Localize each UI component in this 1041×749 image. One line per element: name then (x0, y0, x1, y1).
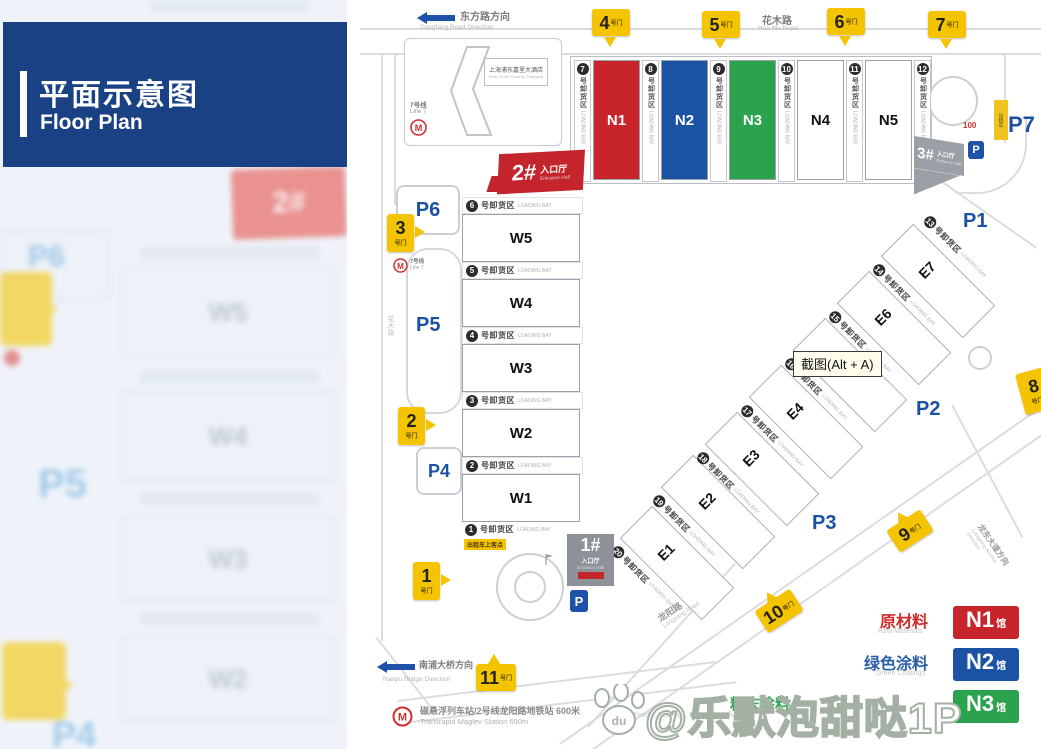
gate-5-arrow-icon (714, 39, 726, 49)
parking-p7-label: P7 (1008, 112, 1035, 138)
gate-4-arrow-icon (604, 37, 616, 47)
parking-p6-label: P6 (416, 199, 440, 222)
gate-4: 4号门 (592, 9, 630, 36)
taxi-stand-marker: 出租车 (994, 100, 1008, 140)
screenshot-tooltip: 截图(Alt + A) (793, 351, 882, 377)
line7-label-west: 7号线 Line 7 (410, 257, 424, 271)
faded-hall-w3: W3 (120, 516, 336, 602)
parking-p4-box: P4 (416, 447, 462, 495)
road-west-inner (394, 53, 396, 205)
header-accent-bar (20, 71, 27, 137)
roundabout-north (928, 76, 978, 126)
paw-watermark-icon: du (588, 684, 646, 740)
west-road-label: 花木路 (385, 315, 395, 336)
hall-w2: W2 (462, 409, 580, 457)
sidebar: W5 W4 W3 W2 2# P6 P5 P4 平面示意图 Floor Plan (0, 0, 360, 749)
legend-n2-badge: N2馆 (953, 648, 1019, 681)
legend-green-coatings-label-en: Green Coatings (876, 670, 925, 677)
parking-p2-label: P2 (916, 398, 940, 421)
distance-100-label: 100 (963, 121, 976, 130)
nanpu-arrow-bar (387, 664, 415, 670)
loading-bay-2: 2号卸货区LOADING BAY (462, 457, 583, 474)
gate-3: 3号门 (387, 214, 414, 252)
faded-parking-p6: P6 (28, 240, 65, 274)
hall-w5: W5 (462, 214, 580, 262)
hall-n4: N4 (797, 60, 844, 180)
parking-icon-north: P (968, 141, 984, 159)
dongfang-direction-label-en: Dongfang Road Direction (420, 24, 493, 31)
watermark-text: @乐默泡甜哒1P (645, 684, 963, 746)
svg-text:du: du (612, 714, 627, 728)
entrance-1-banner: 1# 入口厅 Entrance Hall (567, 534, 614, 586)
faded-parking-p4: P4 (52, 714, 96, 749)
faded-entrance2-banner: 2# (231, 166, 347, 240)
dongfang-direction-label: 东方路方向 (460, 8, 510, 23)
line7-label-north: 7号线 Line 7 (410, 99, 427, 115)
hall-w3: W3 (462, 344, 580, 392)
parking-p4-label: P4 (428, 461, 450, 482)
entrance-1-red-strip (578, 572, 604, 579)
svg-text:M: M (397, 262, 404, 271)
hall-n2: N2 (661, 60, 708, 180)
nanpu-direction-label: 南浦大桥方向 (419, 658, 473, 671)
loading-bay-6: 6号卸货区LOADING BAY (462, 197, 583, 214)
hall-n3: N3 (729, 60, 776, 180)
gate-1-arrow-icon (441, 574, 451, 586)
sidebar-header: 平面示意图 Floor Plan (3, 22, 347, 167)
loading-bay-5: 5号卸货区LOADING BAY (462, 262, 583, 279)
faded-hall-w2: W2 (120, 636, 336, 722)
hotel-building-outline (405, 39, 561, 145)
gate-1: 1号门 (413, 562, 440, 600)
gate-6: 6号门 (827, 8, 865, 35)
parking-p1-label: P1 (963, 210, 987, 233)
parking-p5-label: P5 (416, 314, 440, 337)
nanpu-arrow-icon (377, 661, 387, 673)
gate-11-arrow-icon (488, 654, 500, 664)
maglev-station-label-en: Transrapid Maglev Station 600m (420, 717, 528, 726)
nanpu-direction-label-en: Nanpu Bridge Direction (383, 676, 450, 683)
loading-bay-11: 11号卸货区LOADING BAY (846, 60, 863, 182)
loading-bay-9: 9号卸货区LOADING BAY (710, 60, 727, 182)
dongfang-arrow-icon (417, 12, 427, 24)
metro-logo-icon-north: M (410, 119, 427, 136)
hotel-block (404, 38, 562, 146)
metro-logo-icon-station: M (392, 706, 413, 727)
loading-bay-4: 4号卸货区LOADING BAY (462, 327, 583, 344)
road-west (381, 53, 383, 641)
gate-11: 11号门 (476, 664, 516, 691)
svg-text:M: M (415, 123, 423, 133)
parking-icon-south: P (570, 590, 588, 612)
metro-logo-icon-west: M (393, 258, 408, 273)
page-title: 平面示意图 (39, 70, 199, 114)
hall-n5: N5 (865, 60, 912, 180)
taxi-pickup-label: 出租车上客点 (464, 539, 506, 550)
hall-w1: W1 (462, 474, 580, 522)
legend-raw-materials-label-en: Raw Materials (878, 628, 922, 635)
gate-7-arrow-icon (940, 39, 952, 49)
hotel-label: 上海浦东嘉里大酒店 Kerry Hotel Pudong, Shanghai (484, 58, 548, 86)
gate-2: 2号门 (398, 407, 425, 445)
gate-2-arrow-icon (426, 419, 436, 431)
gate-6-arrow-icon (839, 36, 851, 46)
roundabout-east-small (968, 346, 992, 370)
hall-n1: N1 (593, 60, 640, 180)
faded-parking-p5: P5 (38, 462, 87, 507)
gate-7: 7号门 (928, 11, 966, 38)
loading-bay-8: 8号卸货区LOADING BAY (642, 60, 659, 182)
legend-n1-badge: N1馆 (953, 606, 1019, 639)
loading-bay-1: 1号卸货区LOADING BAY (462, 522, 581, 537)
faded-hall-w5: W5 (120, 266, 336, 358)
maglev-station-label: 磁悬浮列车站/2号线龙阳路地铁站 600米 (420, 704, 580, 717)
huamu-road-label-en: Hua Mu Road (758, 25, 798, 32)
parking-p3-label: P3 (812, 512, 836, 535)
faded-hall-w4: W4 (120, 390, 336, 482)
gate-5: 5号门 (702, 11, 740, 38)
hall-w4: W4 (462, 279, 580, 327)
flag-icon (545, 553, 555, 565)
loading-bay-3: 3号卸货区LOADING BAY (462, 392, 583, 409)
svg-text:M: M (398, 712, 407, 724)
floor-plan-screenshot: W5 W4 W3 W2 2# P6 P5 P4 平面示意图 Floor Plan (0, 0, 1041, 749)
page-title-en: Floor Plan (40, 111, 143, 135)
roundabout-south-inner (514, 571, 546, 603)
loading-bay-10: 10号卸货区LOADING BAY (778, 60, 795, 182)
entrance-2-banner: 2# 入口厅Entrance Hall (497, 150, 585, 195)
dongfang-arrow-bar (427, 15, 455, 21)
gate-3-arrow-icon (415, 226, 425, 238)
